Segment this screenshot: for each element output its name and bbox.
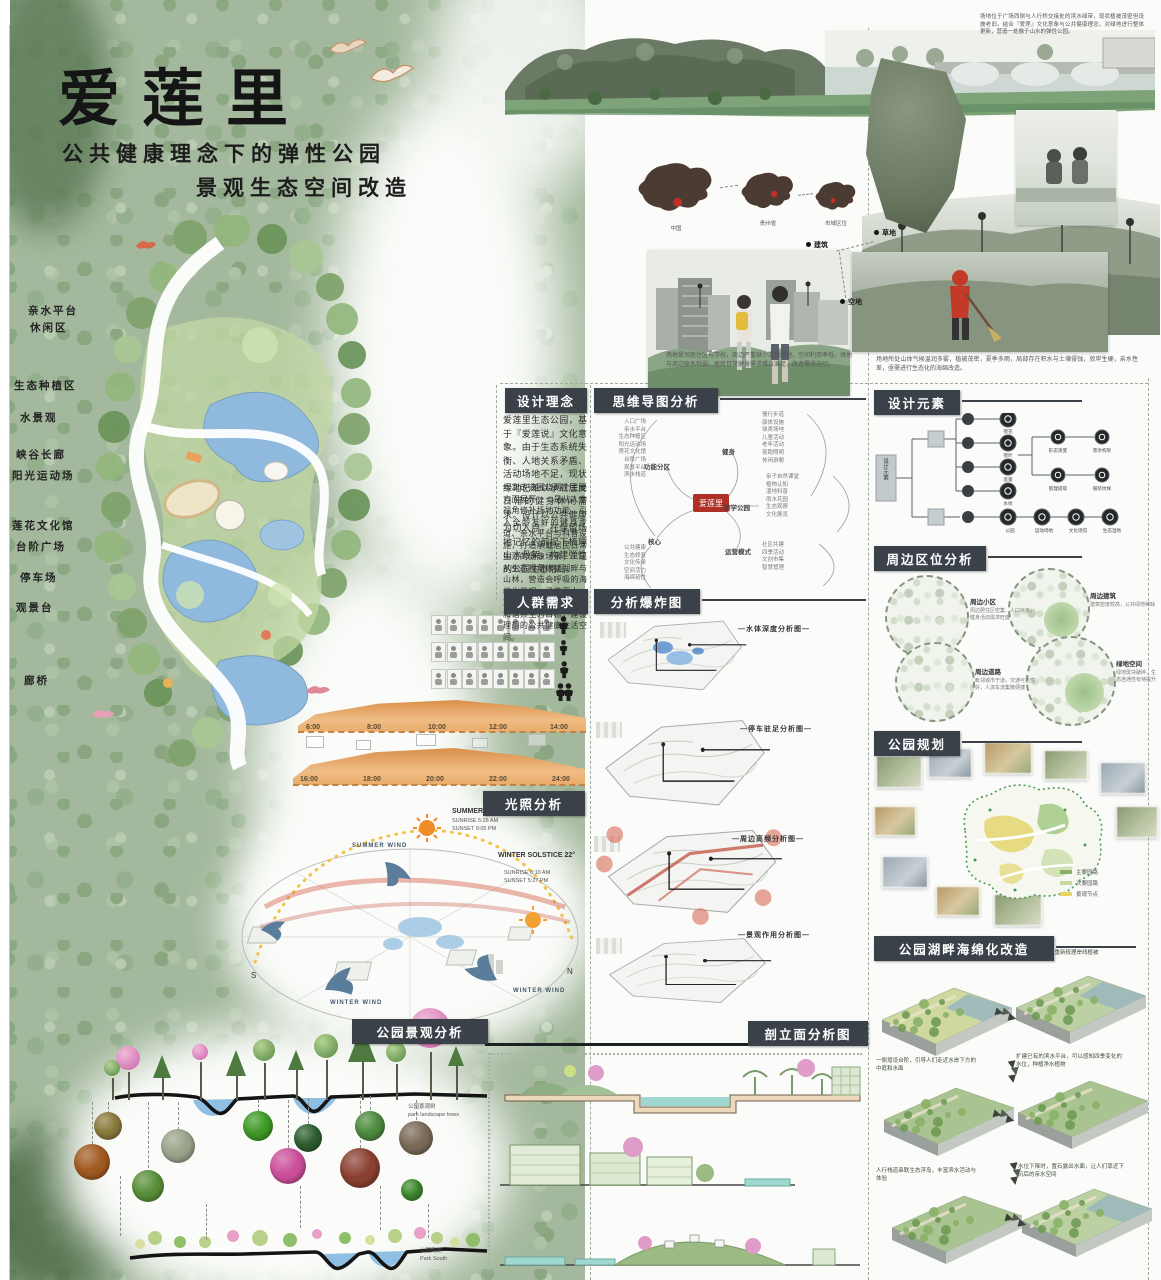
explosion-title-2: —停车驻足分析图— bbox=[740, 724, 812, 734]
timeline-time: 24:00 bbox=[552, 776, 570, 783]
poster-subtitle-2: 景观生态空间改造 bbox=[196, 172, 412, 202]
crowd-need-icon bbox=[478, 669, 493, 689]
header-rule bbox=[988, 556, 1082, 558]
site-plan-label: 生态种植区 bbox=[14, 378, 77, 393]
mind-branch-label: 研学公园 bbox=[724, 502, 750, 512]
mind-map-center: 爱莲里 bbox=[699, 498, 723, 508]
crowd-need-icon bbox=[509, 669, 524, 689]
crowd-need-icon bbox=[478, 615, 493, 635]
arrow-icon bbox=[994, 1058, 1023, 1088]
locator-map-caption: 贵州省 bbox=[737, 219, 799, 227]
winter-solstice-label: WINTER SOLSTICE 22° bbox=[498, 852, 578, 859]
mind-branch-items: 入口广场亲水平台生态种植区阳光运动场莲花文化馆台阶广场观景平台滨水栈道 bbox=[596, 419, 646, 480]
bird-icon bbox=[304, 682, 332, 703]
master-plan bbox=[70, 215, 420, 780]
couple-photo bbox=[648, 250, 850, 396]
crowd-need-icon bbox=[447, 669, 462, 689]
plant-photo-circle bbox=[94, 1112, 122, 1140]
explosion-title-1: —水体深度分析图— bbox=[738, 624, 810, 634]
locator-map bbox=[737, 169, 799, 220]
tree-trunk bbox=[430, 1052, 432, 1100]
crowd-need-icon bbox=[431, 669, 446, 689]
element-label: 肌理提取 bbox=[1036, 486, 1080, 492]
crowd-need-icon bbox=[509, 642, 524, 662]
building-sketch bbox=[528, 734, 546, 746]
site-plan-label: 观景台 bbox=[16, 600, 54, 615]
poster-title: 爱莲里 bbox=[58, 48, 310, 138]
crowd-need-icon bbox=[431, 615, 446, 635]
crowd-need-icon bbox=[462, 615, 477, 635]
crowd-need-icon bbox=[462, 642, 477, 662]
element-label: 莲蓬 bbox=[991, 477, 1025, 483]
sponge-note-5: 人行栈道串联生态浮岛，丰富滨水活动与体验 bbox=[876, 1168, 976, 1183]
dashed-drop-line bbox=[308, 1098, 309, 1124]
site-plan-label: 停车场 bbox=[20, 570, 58, 585]
crowd-need-icon bbox=[462, 669, 477, 689]
dashed-drop-line bbox=[370, 1096, 371, 1110]
site-plan-label: 休闲区 bbox=[30, 320, 68, 335]
sponge-note-3: 一侧增设台阶，引导人们走近水岸下方的中庭和水面 bbox=[876, 1058, 976, 1073]
reference-photo bbox=[874, 806, 916, 836]
explosion-map bbox=[598, 614, 748, 707]
compass-n: N bbox=[567, 967, 573, 976]
plant-photo-circle bbox=[340, 1148, 380, 1188]
location-label-green: 绿地空间绿地斑块破碎，生态连通性有待提升 bbox=[1116, 658, 1156, 684]
person-icon bbox=[558, 661, 570, 684]
timeline-time: 6:00 bbox=[306, 724, 320, 731]
sponge-stage-diagram bbox=[1016, 1183, 1156, 1280]
element-label: 荷叶 bbox=[991, 453, 1025, 459]
header-rule bbox=[962, 400, 1082, 402]
timeline-time: 22:00 bbox=[489, 776, 507, 783]
element-label: 荷花 bbox=[991, 429, 1025, 435]
design-concept-para2: 本次改造围绕两个主要方面展开：一是从人本视角修补场地功能，引入全龄友好的健身步道… bbox=[503, 482, 587, 643]
header-rule bbox=[702, 599, 866, 601]
header-design-concept: 设计理念 bbox=[505, 388, 587, 413]
plan-legend: 主要园路次要园路景观节点 bbox=[1060, 868, 1098, 901]
tree-pink bbox=[192, 1044, 208, 1060]
plant-photo-circle bbox=[401, 1179, 423, 1201]
element-label: 水纹 bbox=[991, 501, 1025, 507]
mind-branch-label: 运营模式 bbox=[725, 546, 751, 556]
crowd-need-icon bbox=[493, 642, 508, 662]
timeline-edge bbox=[293, 784, 585, 786]
map-connector bbox=[798, 193, 813, 196]
explosion-map bbox=[598, 932, 773, 1019]
legend-swatch bbox=[1060, 892, 1072, 896]
plant-photo-circle bbox=[74, 1144, 110, 1180]
plant-photo-circle bbox=[132, 1170, 164, 1202]
mind-branch-items: 亲子自然课堂植物认知湿地科普雨水花园生态观察文化展览 bbox=[766, 474, 828, 520]
tree-trunk bbox=[456, 1064, 458, 1100]
bird-icon bbox=[90, 706, 116, 727]
timeline-time: 14:00 bbox=[550, 724, 568, 731]
plant-photo-circle bbox=[399, 1121, 433, 1155]
mind-branch-items: 公共健康生态修复文化传承空间活力海绵韧性 bbox=[596, 545, 646, 583]
bird-icon bbox=[134, 238, 158, 257]
locator-map bbox=[812, 179, 860, 220]
tree-trunk bbox=[128, 1072, 130, 1100]
header-design-elements: 设计元素 bbox=[874, 390, 960, 415]
intro-note: 场地位于广场西侧与人行桥交接处的滨水绿带，现状植被茂密但设施老旧。结合『爱莲』文… bbox=[980, 14, 1144, 37]
tree-conifer bbox=[226, 1050, 246, 1076]
section-strip-2 bbox=[495, 1135, 800, 1198]
mind-branch-label: 核心 bbox=[648, 536, 661, 546]
location-circle-roads bbox=[895, 642, 975, 722]
crowd-need-icon bbox=[524, 642, 539, 662]
timeline-edge bbox=[298, 731, 586, 733]
building-sketch bbox=[472, 738, 488, 748]
section-strip-3 bbox=[495, 1213, 865, 1280]
tree-trunk bbox=[236, 1072, 238, 1100]
explosion-title-4: —景观作用分析图— bbox=[738, 930, 810, 940]
timeline-time: 12:00 bbox=[489, 724, 507, 731]
site-tag-building: 建筑 bbox=[806, 240, 828, 250]
winter-wind-label-left: WINTER WIND bbox=[330, 1000, 382, 1006]
mind-branch-label: 功能分区 bbox=[644, 461, 670, 471]
poster-subtitle-1: 公共健康理念下的弹性公园 bbox=[62, 138, 386, 168]
reference-photo bbox=[1116, 806, 1158, 838]
header-sunlight: 光照分析 bbox=[483, 791, 585, 816]
locator-map-caption: 中国 bbox=[632, 224, 720, 232]
legend-row: 景观节点 bbox=[1060, 890, 1098, 898]
design-poster: 爱莲里 公共健康理念下的弹性公园 景观生态空间改造 bbox=[0, 0, 1161, 1280]
label-park-south: 公园南侧Park South bbox=[420, 1248, 480, 1263]
dashed-drop-line bbox=[178, 1102, 179, 1130]
dashed-drop-line bbox=[428, 1204, 429, 1238]
dashed-drop-line bbox=[120, 1176, 121, 1236]
tree-trunk bbox=[396, 1064, 398, 1100]
sponge-note-4: 扩建已有的滨水平台，可以感知四季变化的水位，种植净水植物 bbox=[1016, 1054, 1122, 1069]
header-explosion-analysis: 分析爆炸图 bbox=[594, 589, 700, 614]
compass-s: S bbox=[251, 971, 256, 980]
summer-sunset: SUNSET 9:05 PM bbox=[452, 826, 496, 832]
reference-photo bbox=[876, 756, 922, 788]
mind-branch-items: 慢行步道康体设施球类场地儿童活动老年活动夜跑照明休闲游憩 bbox=[762, 412, 820, 465]
timeline-time: 18:00 bbox=[363, 776, 381, 783]
person-icon bbox=[562, 683, 575, 707]
location-label-buildings: 周边建筑建筑密度较高，公共绿地稀缺 bbox=[1090, 590, 1156, 609]
tree-trunk bbox=[326, 1060, 328, 1100]
legend-row: 主要园路 bbox=[1060, 868, 1098, 876]
site-tag-vacant: 空地 bbox=[840, 297, 862, 307]
crowd-need-icon bbox=[524, 669, 539, 689]
legend-row: 次要园路 bbox=[1060, 879, 1098, 887]
plant-photo-circle bbox=[355, 1111, 385, 1141]
plant-photo-circle bbox=[270, 1148, 306, 1184]
header-rule bbox=[962, 741, 1082, 743]
summer-sunrise: SUNRISE 5:28 AM bbox=[452, 818, 498, 824]
site-plan-label: 廊桥 bbox=[24, 673, 49, 688]
sweeper-photo bbox=[852, 252, 1108, 352]
crowd-need-icon bbox=[493, 669, 508, 689]
label-landscape-trees: 公园景观树park landscape trees bbox=[408, 1104, 478, 1119]
site-tag-grass: 草地 bbox=[874, 228, 896, 238]
crowd-need-icon bbox=[478, 642, 493, 662]
timeline-time: 20:00 bbox=[426, 776, 444, 783]
crowd-need-icon bbox=[447, 642, 462, 662]
explosion-title-3: —周边高频分析图— bbox=[732, 834, 804, 844]
crowd-need-icon bbox=[540, 669, 555, 689]
arrow-icon bbox=[996, 1160, 1025, 1190]
caption-left: 场地紧邻居住区与学校，周边严重缺少活动场地，空间利用率低，场地与周边联系较弱，居… bbox=[666, 352, 852, 369]
bird-icon bbox=[326, 34, 368, 65]
children-photo bbox=[1016, 110, 1116, 225]
timeline-time: 8:00 bbox=[367, 724, 381, 731]
mind-branch-label: 健身 bbox=[722, 446, 735, 456]
dashed-drop-line bbox=[148, 1102, 149, 1168]
header-park-planning: 公园规划 bbox=[874, 731, 960, 756]
header-location-analysis: 周边区位分析 bbox=[874, 546, 986, 571]
timeline-time: 16:00 bbox=[300, 776, 318, 783]
plant-photo-circle bbox=[294, 1124, 322, 1152]
winter-sunset: SUNSET 5:27 PM bbox=[504, 878, 548, 884]
locator-map bbox=[632, 158, 720, 225]
reference-photo bbox=[882, 856, 928, 888]
person-icon bbox=[557, 616, 570, 640]
tree-trunk bbox=[112, 1078, 114, 1100]
tree-green bbox=[104, 1060, 120, 1076]
site-plan-label: 阳光运动场 bbox=[12, 468, 75, 483]
legend-swatch bbox=[1060, 881, 1072, 885]
bird-icon bbox=[366, 58, 416, 95]
tree-trunk bbox=[296, 1068, 298, 1100]
plant-photo-circle bbox=[161, 1129, 195, 1163]
timeline-time: 10:00 bbox=[428, 724, 446, 731]
summer-wind-label: SUMMER WIND bbox=[352, 843, 407, 849]
site-plan-label: 亲水平台 bbox=[28, 303, 78, 318]
header-section-elevation: 剖立面分析图 bbox=[748, 1021, 868, 1046]
legend-swatch bbox=[1060, 870, 1072, 874]
sunlight-diagram: S N bbox=[235, 812, 585, 1039]
element-label: 铺装纹样 bbox=[1080, 486, 1124, 492]
person-icon bbox=[558, 640, 569, 661]
site-plan-label: 水景观 bbox=[20, 410, 58, 425]
left-margin-line bbox=[9, 25, 10, 1280]
section-strip-1 bbox=[500, 1055, 865, 1122]
tree-trunk bbox=[162, 1075, 164, 1100]
dashed-drop-line bbox=[92, 1102, 93, 1144]
design-elements-root-label: 设计元素 bbox=[878, 458, 888, 480]
sponge-note-6: 水位下降时，置石露出水面，让人们靠近下沉后的亲水空间 bbox=[1018, 1164, 1124, 1179]
tree-green bbox=[314, 1034, 338, 1058]
site-plan-label: 莲花文化馆 bbox=[12, 518, 75, 533]
crowd-need-icon bbox=[431, 642, 446, 662]
header-rule bbox=[720, 398, 866, 400]
site-plan-label: 台阶广场 bbox=[16, 539, 66, 554]
tree-trunk bbox=[362, 1057, 364, 1100]
header-sponge: 公园湖畔海绵化改造 bbox=[874, 936, 1054, 961]
dashed-drop-line bbox=[206, 1204, 207, 1240]
caption-right: 场地所处山体气候温润多雾，植被茂密，夏季多雨，局部存在积水与土壤侵蚀，驳岸生硬，… bbox=[876, 356, 1138, 373]
header-rule bbox=[1056, 946, 1136, 948]
winter-sunrise: SUNRISE 8:10 AM bbox=[504, 870, 550, 876]
element-label: 形态演变 bbox=[1036, 448, 1080, 454]
map-connector bbox=[720, 185, 738, 188]
header-crowd-needs: 人群需求 bbox=[504, 589, 588, 614]
winter-wind-label-right: WINTER WIND bbox=[513, 988, 565, 994]
plant-photo-circle bbox=[243, 1111, 273, 1141]
dashed-drop-line bbox=[300, 1186, 301, 1228]
header-mind-map: 思维导图分析 bbox=[594, 388, 718, 413]
element-label: 景亭构架 bbox=[1080, 448, 1124, 454]
element-label: 生态湿地 bbox=[1092, 528, 1132, 534]
site-plan-label: 峡谷长廊 bbox=[16, 447, 66, 462]
tree-green bbox=[253, 1039, 275, 1061]
sponge-stage-diagram bbox=[1012, 1075, 1152, 1172]
tree-trunk bbox=[264, 1063, 266, 1100]
header-landscape-analysis: 公园景观分析 bbox=[352, 1019, 488, 1044]
crowd-need-icon bbox=[447, 615, 462, 635]
crowd-need-icon bbox=[540, 642, 555, 662]
tree-conifer bbox=[288, 1050, 304, 1070]
location-label-residential: 周边小区周边居住区密集、人口众多，健身活动需求旺盛 bbox=[970, 596, 1036, 622]
dashed-drop-line bbox=[380, 1186, 381, 1230]
sponge-stage-diagram bbox=[1010, 970, 1150, 1067]
locator-map-caption: 市域区位 bbox=[812, 219, 860, 227]
dashed-drop-line bbox=[288, 1100, 289, 1148]
tree-green bbox=[386, 1042, 406, 1062]
divider bbox=[496, 385, 497, 600]
location-label-roads: 周边道路毗邻城市干道，交通可达性好，人流车流集散便捷 bbox=[975, 666, 1041, 692]
tree-conifer bbox=[153, 1055, 171, 1078]
tree-conifer bbox=[448, 1046, 464, 1066]
mind-branch-items: 社区共建四季活动文创市集智慧管理 bbox=[762, 542, 820, 572]
tree-trunk bbox=[200, 1062, 202, 1100]
